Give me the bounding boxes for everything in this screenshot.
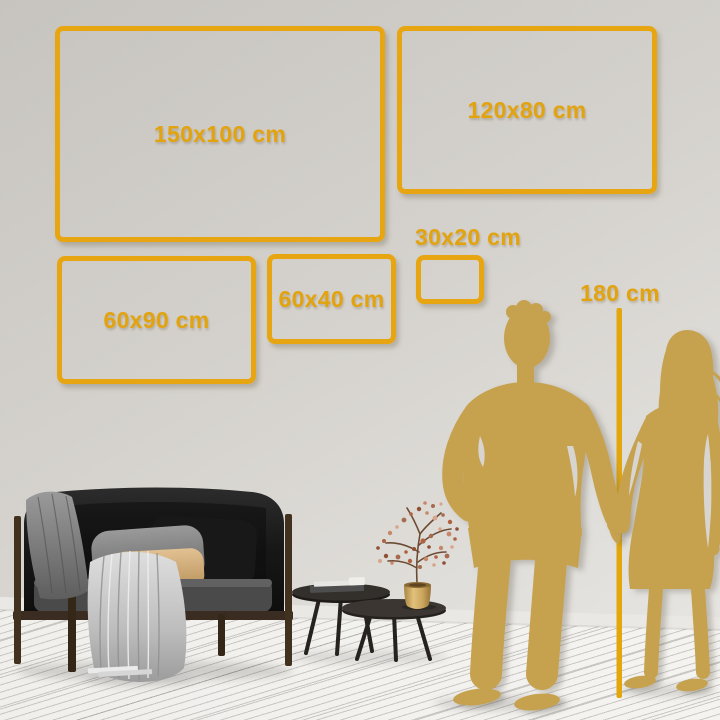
size-frame-150x100-label: 150x100 cm bbox=[154, 121, 286, 148]
size-frame-60x40: 60x40 cm bbox=[267, 254, 396, 344]
size-frame-150x100: 150x100 cm bbox=[55, 26, 385, 242]
table-books bbox=[310, 577, 365, 593]
sofa-leg-right-outer bbox=[285, 514, 292, 666]
woman-right-leg bbox=[698, 589, 703, 672]
brass-vase bbox=[404, 585, 431, 609]
woman-right-arm bbox=[712, 422, 717, 543]
man-right-leg bbox=[542, 548, 552, 674]
sofa-leg-left-outer bbox=[14, 516, 21, 664]
woman-hand bbox=[615, 519, 630, 534]
sofa bbox=[13, 488, 293, 683]
size-frame-60x40-label: 60x40 cm bbox=[279, 286, 385, 313]
man-right-arm bbox=[580, 412, 615, 517]
woman-silhouette bbox=[615, 330, 720, 693]
size-frame-60x90: 60x90 cm bbox=[57, 256, 256, 384]
size-frame-120x80-label: 120x80 cm bbox=[467, 97, 586, 124]
man-head bbox=[504, 308, 550, 368]
size-frame-30x20 bbox=[416, 255, 484, 304]
woman-left-leg bbox=[651, 589, 656, 672]
size-frame-60x90-label: 60x90 cm bbox=[104, 307, 210, 334]
size-frame-120x80: 120x80 cm bbox=[397, 26, 657, 194]
brass-vase-opening bbox=[409, 583, 426, 587]
coffee-tables bbox=[292, 501, 459, 660]
sofa-leg-inner-right bbox=[218, 614, 225, 656]
size-frame-30x20-label: 30x20 cm bbox=[415, 224, 521, 251]
man-silhouette bbox=[452, 300, 625, 713]
man-left-leg bbox=[486, 548, 496, 674]
woman-right-hand bbox=[707, 543, 720, 556]
wall-art-size-guide: 150x100 cm 120x80 cm 60x90 cm 60x40 cm 3… bbox=[0, 0, 720, 720]
height-reference-label: 180 cm bbox=[570, 280, 670, 307]
